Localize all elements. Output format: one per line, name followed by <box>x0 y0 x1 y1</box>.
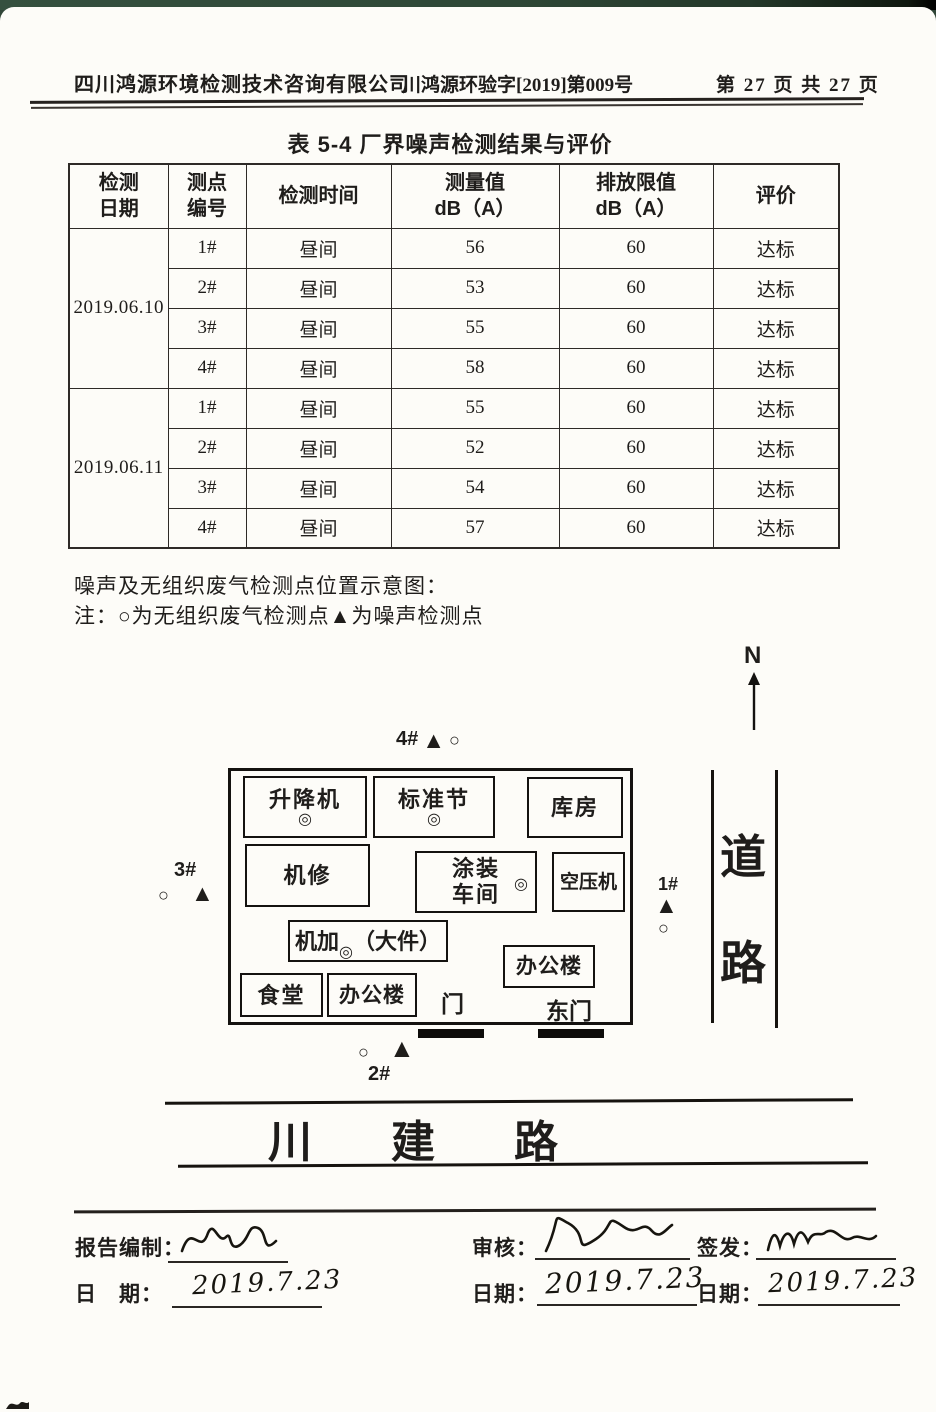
scanned-report-page: 四川鸿源环境检测技术咨询有限公司 川鸿源环验字[2019]第009号 第 27 … <box>0 0 936 1412</box>
table-row: 2# 昼间 52 60 达标 <box>69 428 839 468</box>
diagram-caption: 噪声及无组织废气检测点位置示意图： <box>74 570 448 600</box>
road-line <box>711 770 714 1023</box>
cell-point: 3# <box>168 308 246 348</box>
building-office-south: 办公楼 <box>327 973 417 1017</box>
cell-eval: 达标 <box>713 228 839 268</box>
issuer-label: 签发： <box>697 1232 763 1262</box>
cell-eval: 达标 <box>713 468 839 508</box>
table-header-row: 检测日期 测点编号 检测时间 测量值dB（A） 排放限值dB（A） 评价 <box>69 164 839 228</box>
review-date-value: 2019.7.23 <box>544 1261 706 1301</box>
monitor-point-4: 4# ▲ ○ <box>396 728 460 751</box>
noise-point-icon: ▲ <box>422 730 445 750</box>
building-label: 车间 <box>452 882 500 908</box>
point-3-label: 3# <box>174 859 196 882</box>
gas-point-icon: ○ <box>158 886 169 904</box>
cell-point: 2# <box>168 428 246 468</box>
building-air-compressor: 空压机 <box>552 852 625 912</box>
gas-sample-point-icon: ◎ <box>298 812 312 827</box>
reviewer-signature <box>538 1205 678 1263</box>
point-1-label: 1# <box>658 874 678 895</box>
reviewer-label: 审核： <box>472 1232 538 1262</box>
cell-time: 昼间 <box>246 508 391 548</box>
company-name: 四川鸿源环境检测技术咨询有限公司 <box>74 68 410 97</box>
cell-point: 1# <box>168 388 246 428</box>
gate-label: 门 <box>441 985 464 1019</box>
cell-limit: 60 <box>559 388 713 428</box>
cell-measured: 58 <box>391 348 559 388</box>
cell-time: 昼间 <box>246 388 391 428</box>
cell-eval: 达标 <box>713 428 839 468</box>
building-label: 机修 <box>283 863 331 888</box>
prepared-date-label: 日 期： <box>75 1278 163 1308</box>
document-number: 川鸿源环验字[2019]第009号 <box>402 70 633 97</box>
table-row: 2# 昼间 53 60 达标 <box>69 268 839 308</box>
cell-point: 4# <box>168 348 246 388</box>
gate-bar <box>538 1029 604 1038</box>
table-row: 2019.06.10 1# 昼间 56 60 达标 <box>69 228 839 268</box>
cell-limit: 60 <box>559 228 713 268</box>
cell-time: 昼间 <box>246 428 391 468</box>
signature-line <box>537 1304 697 1306</box>
col-header-time: 检测时间 <box>246 164 391 228</box>
cell-time: 昼间 <box>246 348 391 388</box>
gas-sample-point-icon: ◎ <box>514 877 528 892</box>
scan-smudge <box>6 1396 30 1409</box>
prepared-by-signature <box>172 1215 284 1263</box>
building-machining: 机加 ◎ （大件） <box>288 920 448 962</box>
col-header-eval: 评价 <box>713 164 839 228</box>
cell-eval: 达标 <box>713 268 839 308</box>
issuer-signature <box>762 1216 884 1262</box>
col-header-limit: 排放限值dB（A） <box>559 164 713 228</box>
building-office-east: 办公楼 <box>503 945 595 988</box>
cell-time: 昼间 <box>246 468 391 508</box>
building-label: 办公楼 <box>516 954 582 979</box>
building-standard-section: 标准节 ◎ <box>373 776 495 838</box>
gas-point-icon: ○ <box>358 1043 369 1061</box>
noise-results-table: 检测日期 测点编号 检测时间 测量值dB（A） 排放限值dB（A） 评价 201… <box>68 163 840 549</box>
north-arrow-icon <box>743 670 765 732</box>
cell-measured: 52 <box>391 428 559 468</box>
building-coating-workshop: 涂装 车间 ◎ <box>415 851 537 913</box>
cell-limit: 60 <box>559 428 713 468</box>
cell-time: 昼间 <box>246 228 391 268</box>
cell-limit: 60 <box>559 468 713 508</box>
noise-point-icon: ▲ <box>389 1039 415 1059</box>
table-row: 4# 昼间 58 60 达标 <box>69 348 839 388</box>
gate-bar <box>418 1029 484 1038</box>
prepared-by-label: 报告编制： <box>75 1232 185 1262</box>
page-number: 第 27 页 共 27 页 <box>716 70 880 97</box>
signature-line <box>756 1258 896 1260</box>
cell-time: 昼间 <box>246 308 391 348</box>
east-road-label: 路 <box>720 940 766 988</box>
cell-limit: 60 <box>559 508 713 548</box>
building-machine-repair: 机修 <box>245 844 370 907</box>
building-canteen: 食堂 <box>240 973 323 1017</box>
noise-point-icon: ▲ <box>655 896 678 916</box>
noise-point-icon: ▲ <box>191 884 214 904</box>
cell-limit: 60 <box>559 308 713 348</box>
building-label: 升降机 <box>269 787 341 812</box>
cell-measured: 53 <box>391 268 559 308</box>
building-label: 机加 <box>295 929 339 954</box>
gas-point-icon: ○ <box>449 731 460 749</box>
building-label: 涂装 <box>452 856 500 882</box>
compass-n-label: N <box>744 642 761 670</box>
cell-eval: 达标 <box>713 508 839 548</box>
cell-point: 4# <box>168 508 246 548</box>
gas-sample-point-icon: ◎ <box>339 945 353 960</box>
cell-date: 2019.06.11 <box>69 388 168 548</box>
building-label: 标准节 <box>398 787 470 812</box>
col-header-measured: 测量值dB（A） <box>391 164 559 228</box>
gas-sample-point-icon: ◎ <box>427 812 441 827</box>
cell-limit: 60 <box>559 268 713 308</box>
building-label: 食堂 <box>257 983 305 1008</box>
issue-date-label: 日期： <box>697 1278 763 1308</box>
building-label: （大件） <box>353 929 441 954</box>
building-warehouse: 库房 <box>527 777 623 838</box>
signature-line <box>172 1306 322 1308</box>
cell-point: 1# <box>168 228 246 268</box>
cell-eval: 达标 <box>713 388 839 428</box>
building-label: 空压机 <box>560 870 617 895</box>
table-row: 3# 昼间 54 60 达标 <box>69 468 839 508</box>
building-label: 办公楼 <box>339 983 405 1008</box>
signature-line <box>535 1258 690 1260</box>
road-line <box>775 770 778 1028</box>
cell-measured: 56 <box>391 228 559 268</box>
cell-measured: 55 <box>391 308 559 348</box>
legend-note: 注：○为无组织废气检测点▲为噪声检测点 <box>74 600 483 630</box>
cell-date: 2019.06.10 <box>69 228 168 388</box>
building-label: 库房 <box>551 795 599 820</box>
cell-eval: 达标 <box>713 308 839 348</box>
building-hoist: 升降机 ◎ <box>243 776 367 838</box>
table-title: 表 5-4 厂界噪声检测结果与评价 <box>0 127 900 159</box>
table-row: 3# 昼间 55 60 达标 <box>69 308 839 348</box>
review-date-label: 日期： <box>472 1278 538 1308</box>
point-2-label: 2# <box>368 1063 390 1086</box>
table-row: 2019.06.11 1# 昼间 55 60 达标 <box>69 388 839 428</box>
cell-measured: 55 <box>391 388 559 428</box>
point-4-label: 4# <box>396 728 418 751</box>
cell-measured: 57 <box>391 508 559 548</box>
east-gate-label: 东门 <box>546 992 592 1026</box>
cell-point: 3# <box>168 468 246 508</box>
cell-limit: 60 <box>559 348 713 388</box>
cell-measured: 54 <box>391 468 559 508</box>
col-header-point: 测点编号 <box>168 164 246 228</box>
signature-line <box>168 1261 288 1263</box>
signature-line <box>758 1304 900 1306</box>
cell-time: 昼间 <box>246 268 391 308</box>
col-header-date: 检测日期 <box>69 164 168 228</box>
cell-point: 2# <box>168 268 246 308</box>
table-row: 4# 昼间 57 60 达标 <box>69 508 839 548</box>
cell-eval: 达标 <box>713 348 839 388</box>
gas-point-icon: ○ <box>658 919 669 937</box>
south-road-label: 川 建 路 <box>268 1106 592 1170</box>
east-road-label: 道 <box>720 834 766 882</box>
